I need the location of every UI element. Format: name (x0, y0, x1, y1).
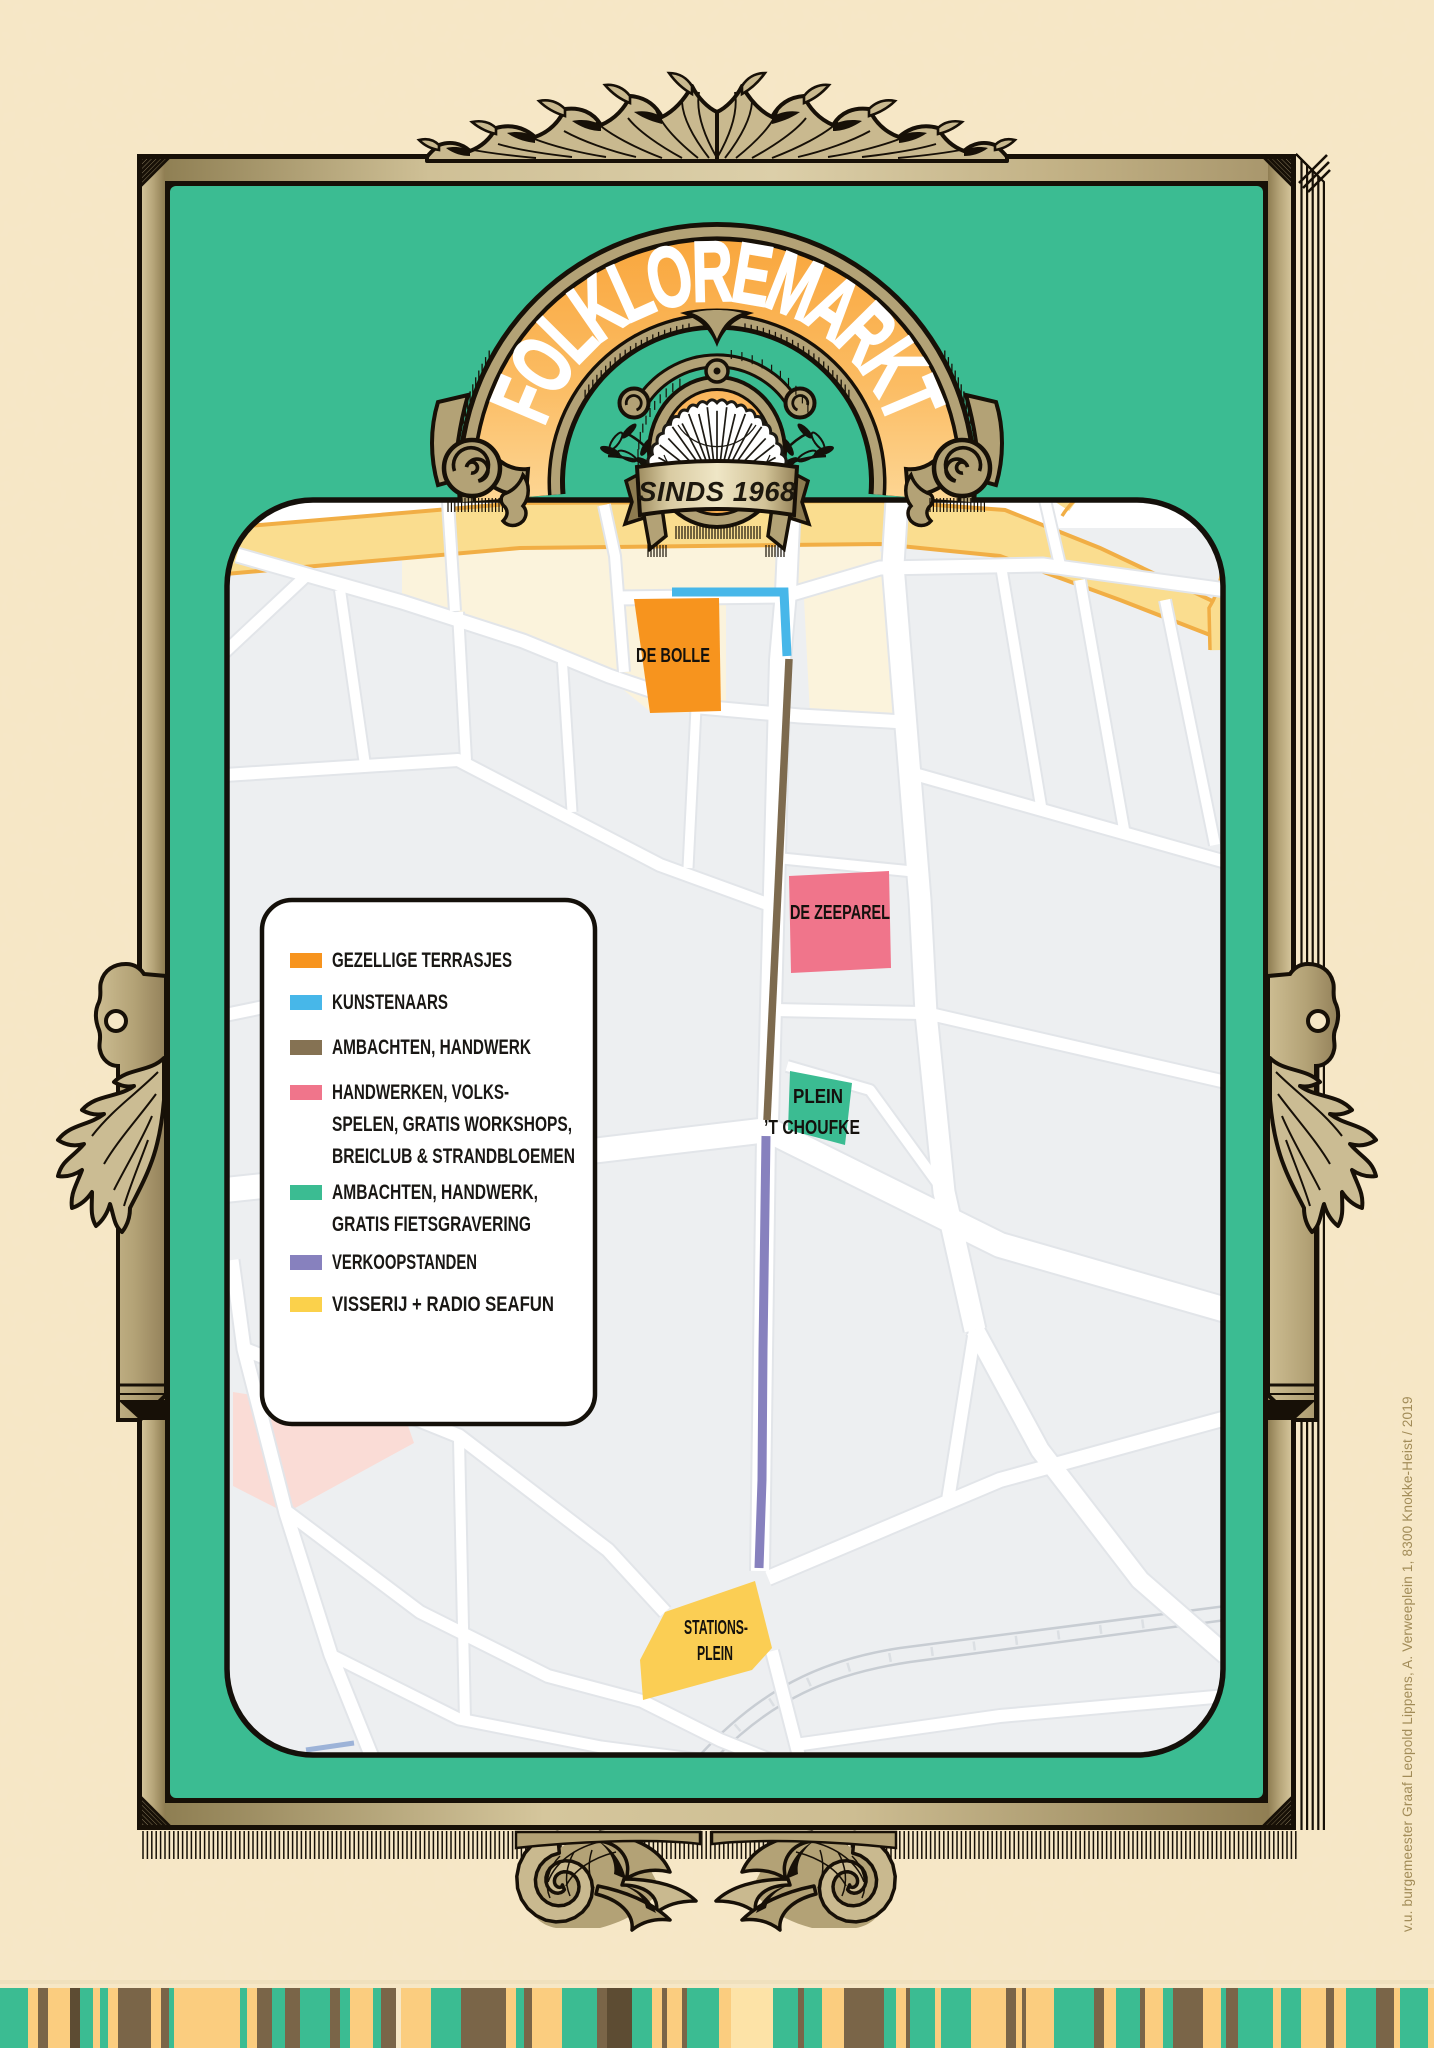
svg-text:VISSERIJ + RADIO SEAFUN: VISSERIJ + RADIO SEAFUN (332, 1292, 554, 1316)
svg-text:STATIONS-: STATIONS- (684, 1616, 748, 1639)
svg-text:GEZELLIGE TERRASJES: GEZELLIGE TERRASJES (332, 948, 512, 972)
svg-text:VERKOOPSTANDEN: VERKOOPSTANDEN (332, 1250, 477, 1274)
svg-text:DE BOLLE: DE BOLLE (636, 644, 710, 667)
svg-text:PLEIN: PLEIN (697, 1642, 733, 1665)
svg-text:GRATIS FIETSGRAVERING: GRATIS FIETSGRAVERING (332, 1212, 531, 1236)
svg-text:HANDWERKEN, VOLKS-: HANDWERKEN, VOLKS- (332, 1080, 509, 1104)
svg-text:AMBACHTEN, HANDWERK: AMBACHTEN, HANDWERK (332, 1035, 531, 1059)
svg-text:SPELEN, GRATIS WORKSHOPS,: SPELEN, GRATIS WORKSHOPS, (332, 1112, 572, 1136)
svg-text:’T CHOUFKE: ’T CHOUFKE (764, 1116, 860, 1139)
svg-text:SINDS 1968: SINDS 1968 (638, 476, 796, 507)
svg-text:BREICLUB & STRANDBLOEMEN: BREICLUB & STRANDBLOEMEN (332, 1144, 575, 1168)
svg-text:KUNSTENAARS: KUNSTENAARS (332, 990, 448, 1014)
svg-text:v.u. burgemeester Graaf Leopol: v.u. burgemeester Graaf Leopold Lippens,… (1400, 1396, 1415, 1932)
svg-text:DE ZEEPAREL: DE ZEEPAREL (790, 901, 890, 924)
svg-text:AMBACHTEN, HANDWERK,: AMBACHTEN, HANDWERK, (332, 1180, 538, 1204)
svg-text:PLEIN: PLEIN (793, 1085, 843, 1108)
